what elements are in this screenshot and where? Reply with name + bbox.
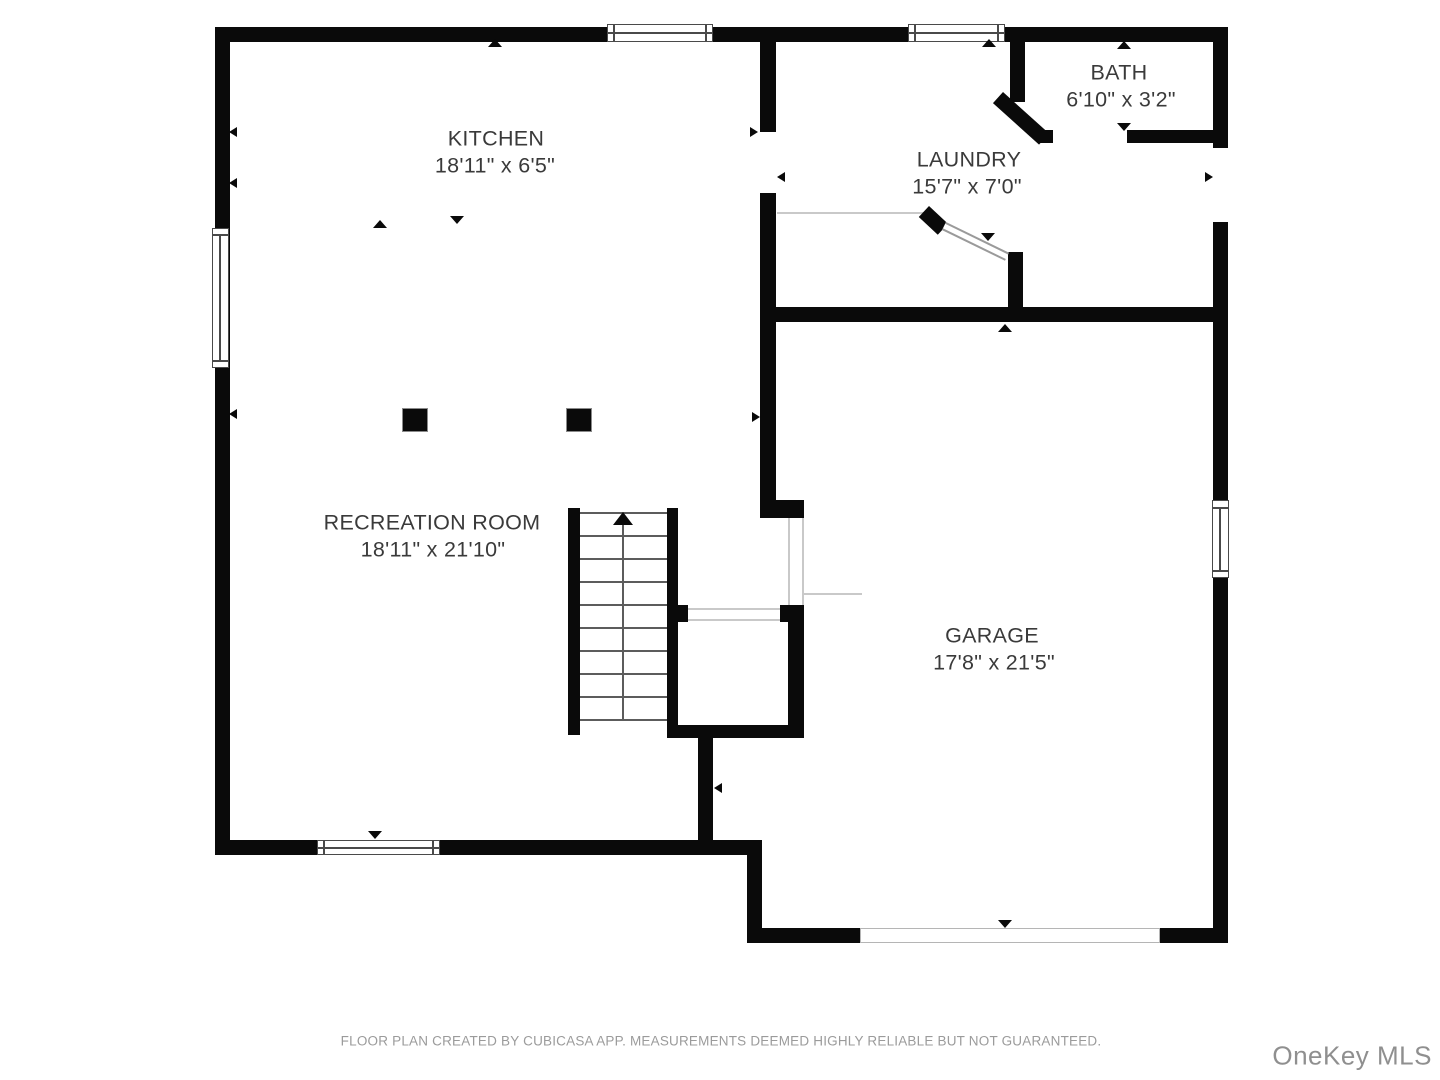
wall-bath-diagonal-patch bbox=[1038, 130, 1053, 143]
wall-laundry-garage bbox=[763, 307, 1228, 322]
wall-recreation-bottom bbox=[215, 840, 762, 855]
room-label-laundry: LAUNDRY bbox=[917, 148, 1021, 173]
wall-closet-bottom bbox=[667, 725, 804, 738]
door-direction-marker bbox=[982, 39, 996, 47]
door-direction-marker bbox=[714, 783, 722, 793]
watermark: OneKey MLS bbox=[1272, 1041, 1432, 1072]
wall-closet-right bbox=[788, 622, 804, 738]
wall-right-upper bbox=[1213, 27, 1228, 148]
door-direction-marker bbox=[998, 920, 1012, 928]
footer-disclaimer: FLOOR PLAN CREATED BY CUBICASA APP. MEAS… bbox=[341, 1034, 1102, 1049]
window-garage-right bbox=[1212, 500, 1229, 578]
room-dims-kitchen: 18'11" x 6'5" bbox=[435, 154, 555, 179]
door-opening-garage-entry bbox=[788, 518, 790, 605]
wall-stairs-left bbox=[568, 508, 580, 735]
room-dims-recreation: 18'11" x 21'10" bbox=[361, 538, 506, 563]
wall-kitchen-laundry-divider bbox=[760, 42, 776, 518]
door-direction-marker bbox=[1205, 172, 1213, 182]
door-direction-marker bbox=[1117, 41, 1131, 49]
closet-door-opening bbox=[688, 608, 780, 610]
column bbox=[566, 408, 592, 432]
door-direction-marker bbox=[488, 39, 502, 47]
door-direction-marker bbox=[1117, 123, 1131, 131]
room-label-kitchen: KITCHEN bbox=[448, 127, 544, 152]
room-label-garage: GARAGE bbox=[945, 624, 1039, 649]
room-dims-garage: 17'8" x 21'5" bbox=[933, 651, 1055, 676]
wall-right-lower bbox=[1213, 222, 1228, 943]
wall-below-closet bbox=[698, 738, 713, 842]
floor-plan: KITCHEN 18'11" x 6'5" BATH 6'10" x 3'2" … bbox=[0, 0, 1440, 1080]
door-direction-marker bbox=[450, 216, 464, 224]
column bbox=[402, 408, 428, 432]
wall-laundry-post bbox=[1008, 252, 1023, 309]
wall-bath-bottom bbox=[1127, 130, 1213, 143]
stairs-up-arrow bbox=[613, 512, 633, 525]
laundry-door-leaf bbox=[942, 222, 1009, 261]
room-label-bath: BATH bbox=[1091, 61, 1148, 86]
wall-divider-foot bbox=[776, 500, 804, 518]
door-direction-marker bbox=[998, 324, 1012, 332]
wall-bath-left bbox=[1010, 42, 1025, 102]
wall-closet-right-nub bbox=[780, 605, 804, 622]
wall-top bbox=[215, 27, 1228, 42]
wall-stairs-right bbox=[667, 508, 678, 738]
laundry-door-line bbox=[777, 212, 935, 214]
garage-door-opening bbox=[860, 928, 1160, 943]
door-direction-marker bbox=[981, 233, 995, 241]
door-direction-marker bbox=[229, 127, 237, 137]
door-direction-marker bbox=[752, 412, 760, 422]
wall-left bbox=[215, 27, 230, 855]
door-direction-marker bbox=[777, 172, 785, 182]
window-left-wall bbox=[212, 228, 229, 368]
door-direction-marker bbox=[368, 831, 382, 839]
door-gap-kitchen-laundry bbox=[760, 132, 776, 193]
door-direction-marker bbox=[373, 220, 387, 228]
door-direction-marker bbox=[229, 178, 237, 188]
room-dims-laundry: 15'7" x 7'0" bbox=[912, 175, 1022, 200]
room-dims-bath: 6'10" x 3'2" bbox=[1066, 88, 1176, 113]
garage-boundary-line bbox=[804, 593, 862, 595]
wall-closet-left-nub bbox=[678, 605, 688, 622]
door-direction-marker bbox=[229, 409, 237, 419]
door-direction-marker bbox=[750, 127, 758, 137]
room-label-recreation: RECREATION ROOM bbox=[324, 511, 541, 536]
